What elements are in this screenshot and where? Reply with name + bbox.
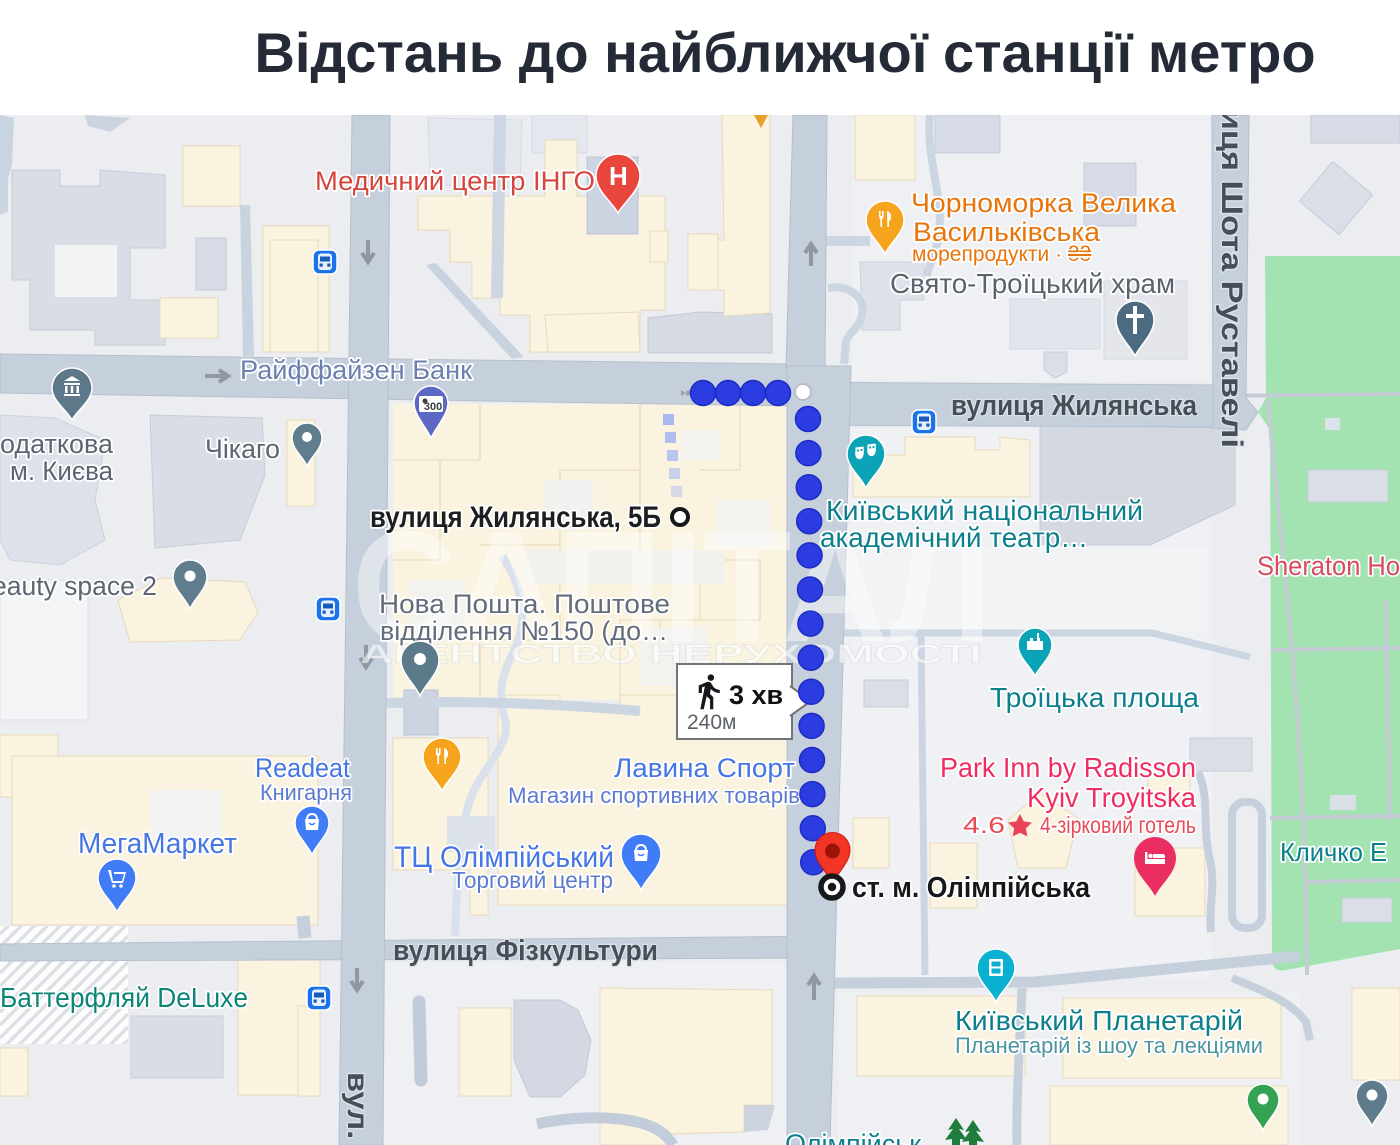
svg-text:Баттерфляй DeLuxe: Баттерфляй DeLuxe <box>0 982 248 1013</box>
svg-text:Планетарій із шоу та лекціями: Планетарій із шоу та лекціями <box>955 1033 1263 1058</box>
svg-text:вулиця Жилянська: вулиця Жилянська <box>951 390 1198 422</box>
svg-text:300: 300 <box>424 401 442 413</box>
svg-text:Райффайзен Банк: Райффайзен Банк <box>240 355 472 385</box>
svg-text:Readeat: Readeat <box>255 753 350 783</box>
svg-text:Нова Пошта. Поштове: Нова Пошта. Поштове <box>379 589 670 619</box>
svg-text:Книгарня: Книгарня <box>260 780 352 805</box>
svg-text:Park Inn by Radisson: Park Inn by Radisson <box>940 752 1196 783</box>
svg-text:Кличко Е: Кличко Е <box>1280 837 1387 867</box>
svg-text:eauty space 2: eauty space 2 <box>0 571 157 601</box>
svg-text:Олімпійськ: Олімпійськ <box>785 1129 921 1145</box>
svg-text:м. Києва: м. Києва <box>10 456 114 486</box>
svg-text:Чорноморка Велика: Чорноморка Велика <box>911 188 1177 218</box>
svg-text:H: H <box>609 161 628 191</box>
svg-text:4-зірковий готель: 4-зірковий готель <box>1040 812 1196 838</box>
svg-text:Kyiv Troyitska: Kyiv Troyitska <box>1027 782 1196 813</box>
svg-text:Троїцька площа: Троїцька площа <box>990 682 1199 713</box>
svg-text:вулиця Шота Руставелі: вулиця Шота Руставелі <box>1215 115 1248 448</box>
svg-text:Торговий центр: Торговий центр <box>452 867 613 893</box>
svg-text:3 хв: 3 хв <box>729 680 783 710</box>
svg-text:Лавина Спорт: Лавина Спорт <box>614 753 795 783</box>
svg-text:Чікаго: Чікаго <box>205 434 280 464</box>
svg-text:академічний театр…: академічний театр… <box>820 522 1088 553</box>
svg-text:Магазин спортивних товарів: Магазин спортивних товарів <box>508 783 800 808</box>
svg-text:МегаМаркет: МегаМаркет <box>78 828 237 860</box>
svg-text:одаткова: одаткова <box>0 429 114 459</box>
svg-text:Київський Планетарій: Київський Планетарій <box>955 1005 1243 1036</box>
svg-text:вулиця Фізкультури: вулиця Фізкультури <box>393 935 658 967</box>
svg-text:вулиця Жилянська, 5Б: вулиця Жилянська, 5Б <box>370 501 661 534</box>
svg-text:ст. м. Олімпійська: ст. м. Олімпійська <box>852 872 1091 904</box>
svg-text:240м: 240м <box>687 711 736 734</box>
svg-text:Медичний центр ІНГО: Медичний центр ІНГО <box>315 166 595 196</box>
svg-text:морепродукти · ₴₴: морепродукти · ₴₴ <box>912 243 1092 266</box>
svg-text:4.6: 4.6 <box>963 812 1005 838</box>
svg-text:вул. Ан: вул. Ан <box>341 1072 374 1145</box>
svg-text:Свято-Троїцький храм: Свято-Троїцький храм <box>890 268 1175 299</box>
svg-text:Sheraton Ho: Sheraton Ho <box>1257 551 1400 581</box>
